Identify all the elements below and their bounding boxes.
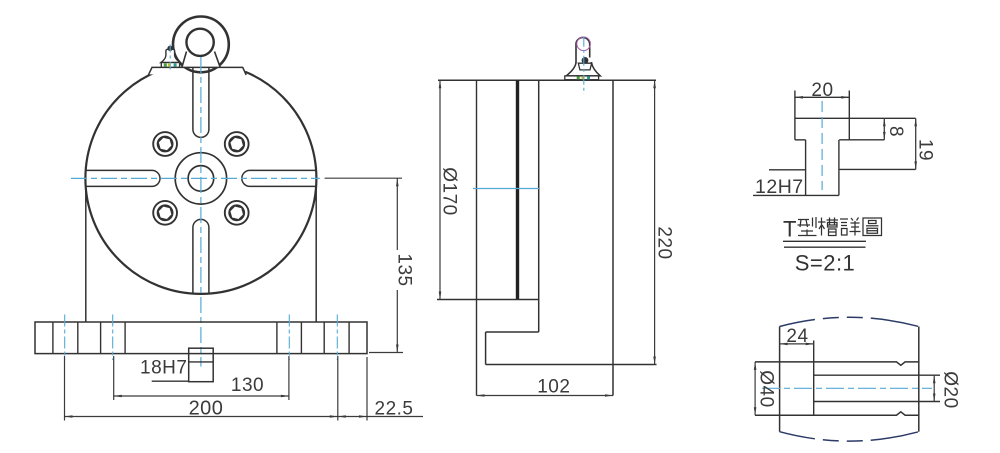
svg-text:130: 130 bbox=[231, 375, 264, 396]
svg-text:8: 8 bbox=[885, 126, 906, 137]
svg-text:22.5: 22.5 bbox=[375, 399, 414, 420]
svg-text:12H7: 12H7 bbox=[755, 176, 804, 198]
svg-text:Ø20: Ø20 bbox=[940, 371, 961, 408]
svg-text:Ø40: Ø40 bbox=[756, 370, 777, 407]
svg-text:19: 19 bbox=[915, 139, 936, 161]
svg-text:135: 135 bbox=[394, 253, 415, 286]
svg-text:T: T bbox=[783, 217, 796, 242]
svg-text:18H7: 18H7 bbox=[140, 358, 187, 379]
svg-text:220: 220 bbox=[654, 226, 675, 259]
svg-text:102: 102 bbox=[537, 377, 570, 398]
svg-text:S=2:1: S=2:1 bbox=[795, 251, 856, 276]
svg-text:200: 200 bbox=[189, 398, 224, 420]
svg-text:Ø170: Ø170 bbox=[439, 167, 460, 215]
svg-text:20: 20 bbox=[811, 80, 833, 101]
svg-text:24: 24 bbox=[786, 326, 808, 347]
